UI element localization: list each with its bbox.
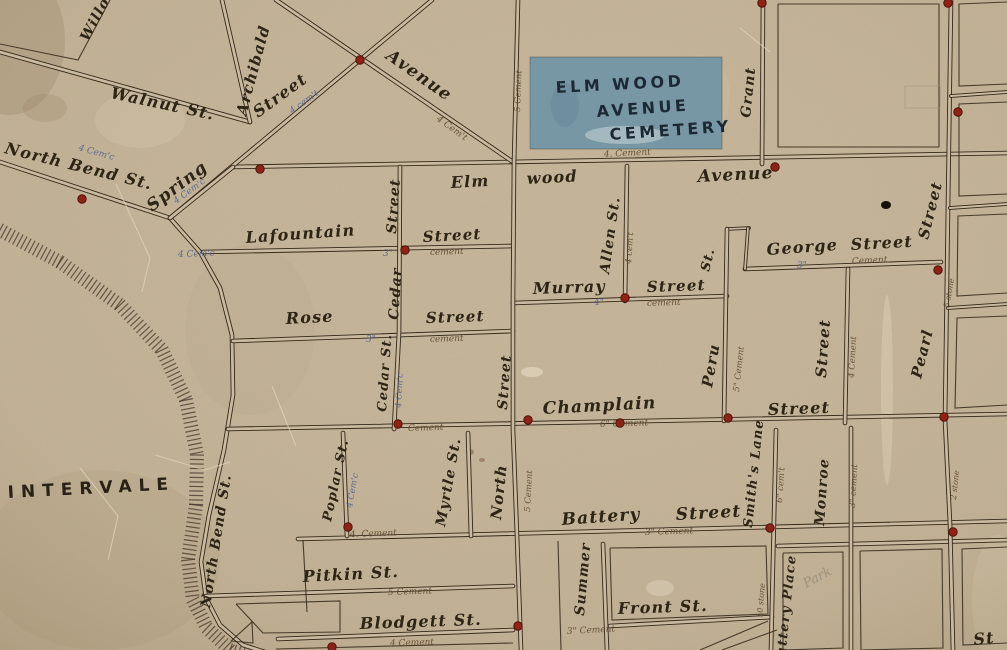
street-label: Rose (284, 307, 334, 329)
street-label: Street (675, 502, 742, 525)
surface-note: Cement (852, 255, 888, 267)
intersection-dot (344, 523, 352, 531)
surface-note: cement (430, 247, 464, 258)
street-label: Street (422, 225, 482, 246)
intersection-dot (256, 165, 264, 173)
intersection-dot (954, 108, 962, 116)
surface-note: 3" (383, 249, 393, 259)
intersection-dot (934, 266, 942, 274)
surface-note: 4 Cem'c (177, 249, 215, 260)
map-svg: ELM WOODAVENUECEMETERYWillowWalnut St.Ar… (0, 0, 1007, 650)
ink-blot (881, 201, 891, 209)
street-core-peru-jog-horizontal (727, 228, 749, 229)
intersection-dot (616, 419, 624, 427)
surface-note: 3" (366, 335, 376, 345)
intersection-dot (78, 195, 86, 203)
surface-note: Cement (408, 423, 444, 434)
surface-note: 3" (797, 261, 807, 271)
surface-note: 4 Cement (389, 637, 435, 649)
map-canvas: ELM WOODAVENUECEMETERYWillowWalnut St.Ar… (0, 0, 1007, 650)
intersection-dot (356, 56, 364, 64)
intersection-dot (771, 163, 779, 171)
intersection-dot (514, 622, 522, 630)
intersection-dot (328, 643, 336, 650)
surface-note: 3" Cement (645, 526, 694, 538)
surface-note: 4. Cement (349, 528, 398, 540)
street-label: Street (426, 307, 485, 327)
intersection-dot (949, 528, 957, 536)
surface-note: 5 Cement (388, 586, 433, 598)
street-label: wood (526, 166, 578, 188)
intersection-dot (724, 414, 732, 422)
intersection-dot (401, 246, 409, 254)
street-label: Murray (531, 276, 606, 298)
street-label: Street (850, 232, 913, 254)
surface-note: 4" (593, 298, 604, 308)
intersection-dot (766, 524, 774, 532)
intersection-dot (940, 413, 948, 421)
intersection-dot (758, 0, 766, 7)
street-label: Elm (449, 171, 490, 192)
surface-note: 4 Cem'c (394, 373, 406, 410)
map-generated-content: ELM WOODAVENUECEMETERYWillowWalnut St.Ar… (0, 0, 1007, 650)
street-label: Front St. (616, 596, 708, 618)
street-label: St (972, 628, 995, 649)
street-label: Street (647, 276, 706, 296)
street-label: Avenue (695, 163, 774, 187)
street-core-grant-street (762, 0, 763, 164)
intersection-dot (524, 416, 532, 424)
street-label: Street (767, 398, 830, 419)
surface-note: cement (430, 334, 464, 345)
intersection-dot (394, 420, 402, 428)
surface-note: cement (647, 298, 681, 309)
intersection-dot (944, 0, 952, 7)
intersection-dot (621, 294, 629, 302)
surface-note: 5 Cement (513, 70, 524, 113)
